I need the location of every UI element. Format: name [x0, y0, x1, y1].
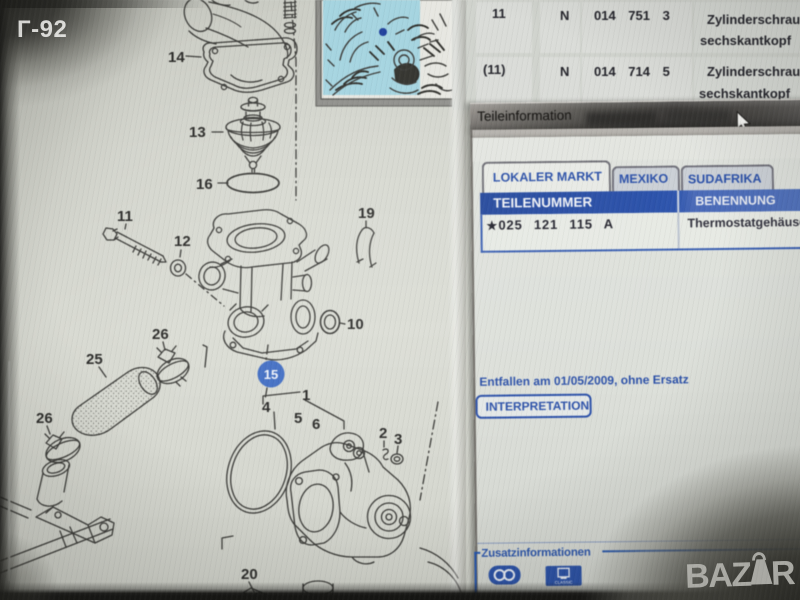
- svg-text:4: 4: [262, 399, 271, 416]
- svg-text:R: R: [770, 554, 795, 593]
- svg-text:BAZ: BAZ: [685, 556, 752, 596]
- svg-text:5: 5: [294, 410, 302, 427]
- svg-text:26: 26: [152, 326, 169, 343]
- svg-text:6: 6: [312, 416, 320, 433]
- svg-text:26: 26: [36, 410, 53, 427]
- svg-text:15: 15: [264, 367, 278, 382]
- svg-text:2: 2: [379, 425, 387, 442]
- svg-text:25: 25: [86, 351, 103, 368]
- svg-text:16: 16: [196, 176, 213, 193]
- svg-text:12: 12: [174, 233, 191, 250]
- svg-text:1: 1: [302, 387, 310, 404]
- svg-text:10: 10: [347, 316, 364, 333]
- svg-text:11: 11: [117, 208, 133, 225]
- svg-text:19: 19: [358, 205, 375, 222]
- svg-text:20: 20: [241, 566, 258, 583]
